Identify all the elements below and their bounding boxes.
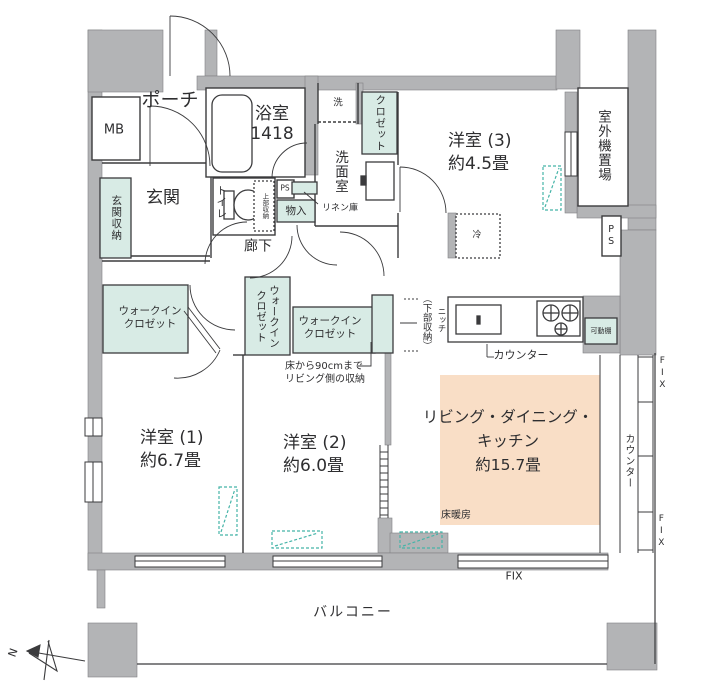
room-label-western2: 洋室 (2) 約6.0畳 (283, 432, 346, 478)
kitchen-counter (448, 297, 583, 342)
room-label-closet: クロゼット (374, 94, 386, 152)
room-label-western3: 洋室 (3) 約4.5畳 (448, 130, 511, 176)
room-label-porch: ポーチ (141, 89, 198, 111)
label-lower-storage: （下部収納） (420, 294, 431, 351)
label-upper-storage: 上部収納 (260, 193, 268, 219)
label-fix-bottom: FIX (505, 571, 522, 584)
room-label-balcony: バルコニー (313, 605, 393, 622)
room-label-washroom: 洗面室 (331, 150, 347, 194)
label-floor-heating: 床暖房 (441, 509, 471, 522)
room-label-entrance-storage: 玄関収納 (110, 195, 122, 241)
room-label-wic-left: ウォークイン クロゼット (119, 305, 182, 331)
room-label-ldk: リビング・ダイニング・ キッチン 約15.7畳 (423, 405, 594, 477)
room-label-bathroom: 浴室 1418 (250, 104, 293, 144)
label-kitchen-counter: カウンター (494, 350, 549, 363)
floor-plan-drawing (0, 0, 713, 698)
label-side-counter: カウンター (622, 434, 634, 489)
washbasin (361, 162, 394, 200)
room-label-outdoor-unit: 室外機置場 (594, 110, 610, 183)
room-label-wic-middle: ウォークイン クロゼット (254, 274, 280, 358)
label-linen: リネン庫 (322, 204, 358, 215)
room-label-storage-small: 物入 (286, 205, 307, 217)
label-ps-right: PS (605, 224, 616, 248)
bathtub (212, 95, 252, 172)
label-washer: 洗 (333, 97, 343, 108)
label-niche: ニッチ (436, 307, 446, 333)
room-label-toilet: トイレ (215, 185, 227, 220)
room-label-hallway: 廊下 (244, 239, 272, 256)
room-label-mb: MB (104, 122, 124, 137)
room-label-entrance: 玄関 (146, 188, 180, 208)
floor-plan: ポーチ MB 浴室 1418 洗 クロゼット 洋室 (3) 約4.5畳 室外機置… (0, 0, 713, 698)
room-label-wic-right: ウォークイン クロゼット (299, 315, 362, 341)
room-label-western1: 洋室 (1) 約6.7畳 (140, 427, 203, 473)
label-fix-right-bottom: FIX (656, 514, 667, 550)
label-movable-shelf: 可動棚 (591, 327, 612, 335)
label-storage-note: 床から90cmまで リビング側の収納 (285, 361, 365, 386)
label-fix-right-top: FIX (657, 356, 668, 392)
label-ps-top: PS (280, 185, 289, 194)
north-arrow (27, 640, 85, 680)
label-fridge: 冷 (472, 231, 481, 242)
